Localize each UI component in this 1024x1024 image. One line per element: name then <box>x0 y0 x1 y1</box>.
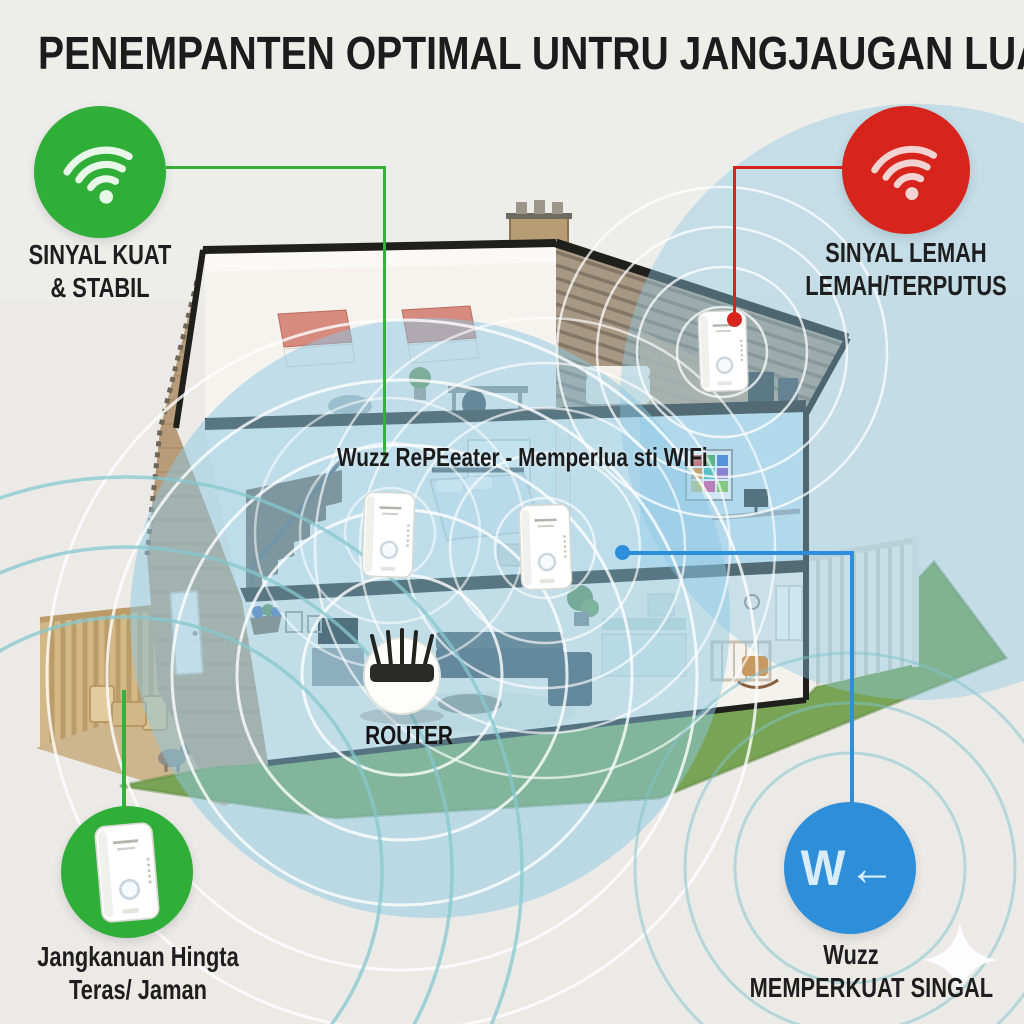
booster-badge: W← <box>784 802 916 934</box>
booster-endpoint-dot <box>615 545 630 560</box>
router-label: ROUTER <box>345 720 473 751</box>
repeater-caption: Wuzz RePEeater - Memperlua sti WIFi <box>337 442 657 473</box>
strong-signal-badge <box>34 106 166 238</box>
strong-signal-label: SINYAL KUAT & STABIL <box>0 238 230 304</box>
outdoor-connector-line <box>122 690 126 808</box>
weak-signal-connector-line <box>733 166 736 316</box>
booster-label: Wuzz MEMPERKUAT SINGAL <box>721 938 981 1004</box>
repeater-middle-right <box>519 504 572 590</box>
booster-connector-line <box>850 551 854 805</box>
weak-signal-connector-line <box>736 166 844 169</box>
wifi-strong-icon <box>52 124 149 221</box>
wifi-weak-icon <box>860 124 952 216</box>
booster-connector-line <box>623 551 853 555</box>
weak-signal-badge <box>842 106 970 234</box>
strong-signal-connector-line <box>166 166 386 169</box>
page-title: PENEMPANTEN OPTIMAL UNTRU JANGJAUGAN LUA… <box>38 26 973 80</box>
repeater-device-icon <box>89 814 164 930</box>
weak-signal-label: SINYAL LEMAH LEMAH/TERPUTUS <box>776 236 1024 302</box>
repeater-middle-left <box>362 492 415 578</box>
infographic-poster: PENEMPANTEN OPTIMAL UNTRU JANGJAUGAN LUA… <box>0 0 1024 1024</box>
outdoor-range-label: Jangkanuan Hingta Teras/ Jaman <box>3 940 273 1006</box>
outdoor-range-badge <box>61 806 193 938</box>
strong-signal-connector-line <box>383 166 386 462</box>
weak-signal-endpoint-dot <box>727 312 742 327</box>
w-left-arrow-icon: W← <box>801 839 899 897</box>
